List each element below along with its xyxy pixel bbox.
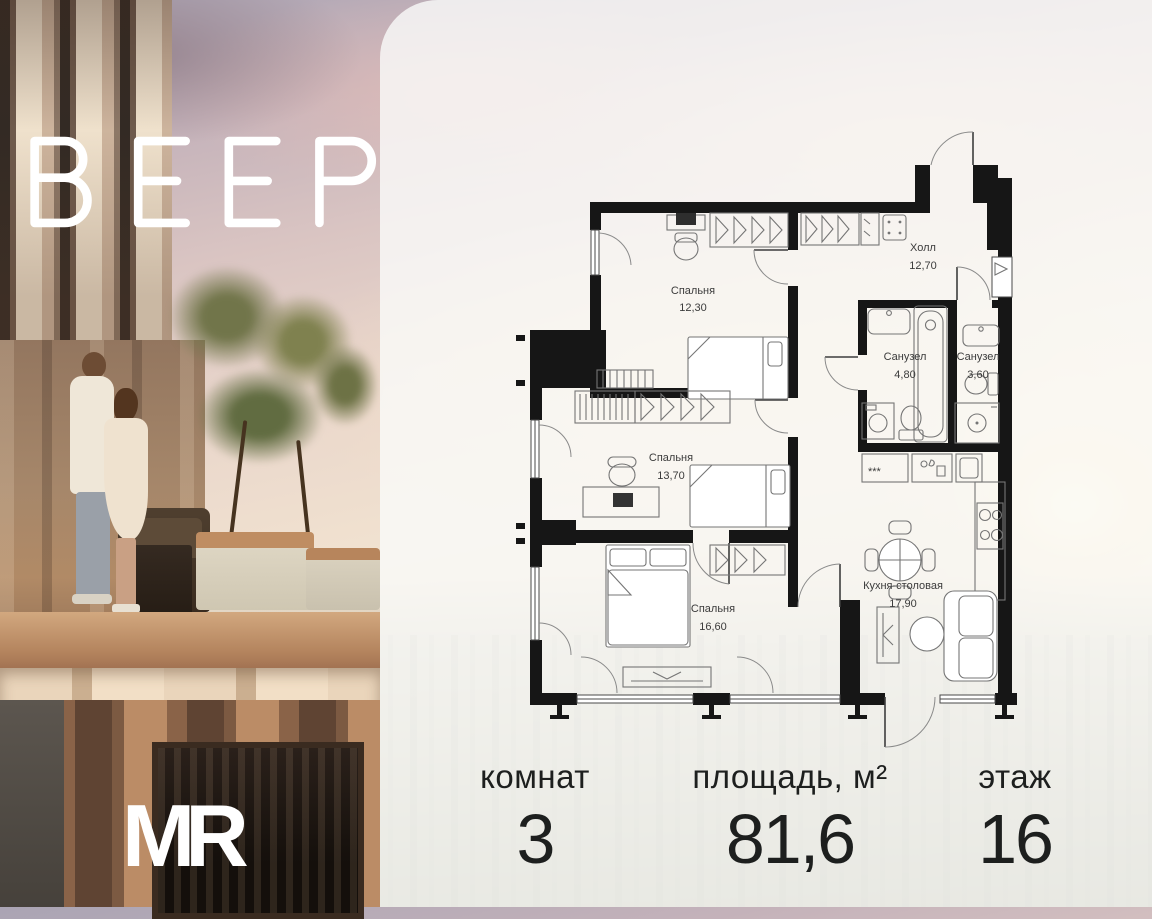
room-label: Холл bbox=[910, 242, 936, 254]
tree-planter bbox=[306, 548, 380, 610]
room-area: 3,60 bbox=[967, 369, 988, 381]
room-area: 13,70 bbox=[657, 470, 685, 482]
wardrobe-icon bbox=[710, 213, 788, 247]
room-area: 16,60 bbox=[699, 621, 727, 633]
window-casement-arc bbox=[737, 657, 773, 693]
room-label: Санузел bbox=[957, 351, 1000, 363]
bed-icon bbox=[688, 337, 788, 399]
bed-icon bbox=[690, 465, 790, 527]
stat-area: площадь, м² 81,6 bbox=[692, 758, 887, 874]
stat-rooms-value: 3 bbox=[480, 804, 590, 874]
sofa-icon bbox=[944, 591, 997, 681]
wardrobe-icon bbox=[710, 545, 785, 575]
woman-silhouette bbox=[104, 388, 148, 618]
console-icon bbox=[877, 607, 899, 663]
brand-logo bbox=[26, 134, 382, 230]
room-label: Санузел bbox=[884, 351, 927, 363]
stat-area-value: 81,6 bbox=[692, 804, 887, 874]
kitchen-sink-icon bbox=[912, 454, 952, 482]
svg-text:***: *** bbox=[868, 466, 882, 478]
desk-chair-icon bbox=[583, 457, 659, 517]
double-bed-icon bbox=[606, 545, 690, 647]
balcony-door bbox=[885, 697, 935, 747]
stat-floor-value: 16 bbox=[978, 804, 1052, 874]
tree-foliage bbox=[300, 330, 390, 440]
bathroom-1-door bbox=[825, 357, 858, 390]
developer-logo: MR bbox=[122, 792, 239, 880]
room-label: Кухня-столовая bbox=[863, 580, 943, 592]
entrance-door bbox=[931, 132, 973, 165]
letter-r bbox=[319, 141, 371, 223]
letter-e2 bbox=[229, 141, 276, 223]
hall-wardrobe-icon bbox=[801, 213, 879, 245]
stat-rooms-label: комнат bbox=[480, 758, 590, 796]
dishwasher-icon bbox=[956, 454, 982, 482]
facade-gray-panel bbox=[0, 700, 64, 907]
sink-icon bbox=[963, 325, 999, 346]
round-table-icon bbox=[910, 617, 944, 651]
window-casement-arc bbox=[539, 623, 571, 655]
bedroom-2-door bbox=[755, 400, 788, 433]
stat-floor: этаж 16 bbox=[978, 758, 1052, 874]
window-casement-arc bbox=[539, 425, 571, 457]
letter-e1 bbox=[138, 141, 185, 223]
room-area: 17,90 bbox=[889, 598, 917, 610]
bathroom-2-door bbox=[957, 267, 990, 300]
bedroom-3-door bbox=[693, 543, 729, 584]
room-label: Спальня bbox=[649, 452, 693, 464]
listing-card: *** bbox=[380, 0, 1152, 907]
bedroom-1-door bbox=[754, 250, 788, 284]
stat-floor-label: этаж bbox=[978, 758, 1052, 796]
fridge-icon: *** bbox=[862, 454, 908, 482]
stat-area-label: площадь, м² bbox=[692, 758, 887, 796]
toilet-icon bbox=[899, 406, 923, 440]
window-casement-arc bbox=[599, 233, 631, 265]
tree-planter bbox=[196, 532, 314, 610]
floor-plan: *** bbox=[515, 130, 1025, 760]
sink-icon bbox=[868, 309, 910, 334]
listing-page: { "brand": { "logo_text": "ВЕЕР", "devel… bbox=[0, 0, 1152, 907]
room-area: 12,70 bbox=[909, 260, 937, 272]
room-area: 12,30 bbox=[679, 302, 707, 314]
stat-rooms: комнат 3 bbox=[480, 758, 590, 874]
kitchen-doorway bbox=[798, 564, 840, 607]
room-label: Спальня bbox=[671, 285, 715, 297]
room-area: 4,80 bbox=[894, 369, 915, 381]
desk-chair-icon bbox=[667, 213, 705, 260]
room-label: Спальня bbox=[691, 603, 735, 615]
tv-console-icon bbox=[623, 667, 711, 687]
pouf-icon bbox=[883, 215, 906, 240]
shower-icon bbox=[955, 403, 999, 443]
window-casement-arc bbox=[581, 657, 617, 693]
bathtub-icon bbox=[914, 306, 947, 442]
letter-v bbox=[35, 141, 88, 223]
